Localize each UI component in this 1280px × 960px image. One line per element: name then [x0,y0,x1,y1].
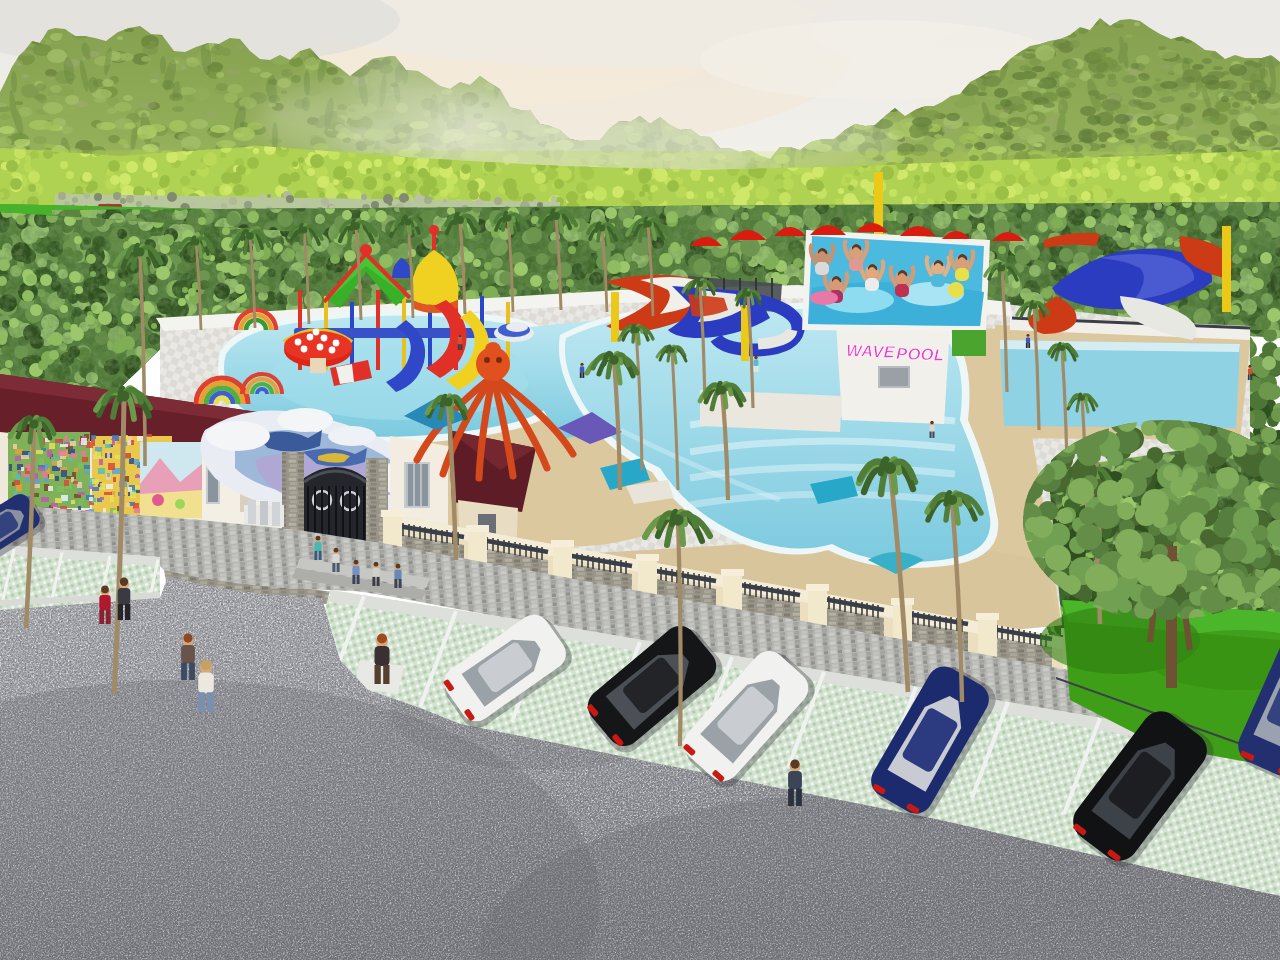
svg-text:WAVE: WAVE [846,341,896,361]
svg-text:POOL: POOL [896,344,945,364]
